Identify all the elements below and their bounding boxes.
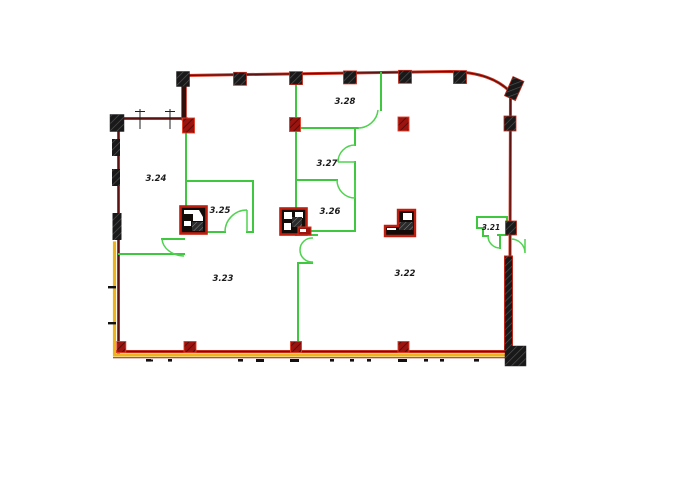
column-bottom-4: [398, 342, 409, 353]
column-top-4: [399, 70, 412, 83]
column-top-1: [234, 72, 247, 85]
column-bottom-1: [117, 342, 126, 353]
structural-columns: [110, 70, 526, 366]
floor-plan-drawing: 3.28 3.27 3.26 3.25 3.24 3.23 3.22 3.21: [0, 0, 686, 494]
shaft-symbol-left: [181, 207, 207, 234]
wall-right-thick: [505, 256, 513, 350]
room-label-3-21: 3.21: [482, 223, 501, 232]
column-step-right-end: [183, 118, 195, 133]
column-top-2: [290, 72, 303, 85]
exterior-walls: [112, 72, 513, 358]
interior-partitions: [119, 73, 507, 352]
door-arc-right-exit: [511, 239, 525, 253]
column-top-right-corner: [504, 77, 524, 101]
column-bottom-2: [184, 342, 196, 353]
column-right-2: [506, 221, 517, 235]
room-label-3-27: 3.27: [317, 159, 338, 169]
room-label-3-23: 3.23: [213, 274, 234, 284]
partition-corridor-3-24: [119, 239, 184, 254]
shaft-symbol-right: [385, 210, 415, 236]
column-red-free-2: [398, 117, 409, 131]
left-wall-segment-3: [113, 213, 122, 240]
room-3-21-enclosure: [477, 217, 507, 248]
column-red-free-1: [290, 118, 301, 132]
column-top-5: [454, 71, 467, 84]
accent-band-yellow: [115, 243, 508, 355]
column-step-corner: [110, 115, 124, 132]
door-arc-room-3-27: [338, 145, 355, 162]
room-label-3-24: 3.24: [146, 174, 167, 184]
room-labels: 3.28 3.27 3.26 3.25 3.24 3.23 3.22 3.21: [146, 97, 501, 284]
shaft-symbol-middle: [281, 209, 312, 236]
left-wall-segment-2: [112, 169, 120, 186]
door-arc-room-3-26: [337, 180, 355, 198]
column-bottom-3: [291, 342, 302, 353]
column-bottom-right-corner: [505, 346, 526, 366]
door-arc-room-3-28: [358, 110, 378, 128]
room-label-3-28: 3.28: [335, 97, 356, 107]
room-label-3-22: 3.22: [395, 269, 416, 279]
left-wall-segment-1: [112, 139, 120, 156]
door-swings: [162, 110, 525, 262]
column-right-1: [504, 116, 516, 131]
bottom-wall-ticks: [146, 359, 479, 362]
floor-plan-canvas: 3.28 3.27 3.26 3.25 3.24 3.23 3.22 3.21: [0, 0, 686, 494]
column-top-left-corner: [177, 72, 190, 87]
column-top-3: [344, 71, 357, 84]
room-label-3-25: 3.25: [210, 206, 231, 216]
door-arc-room-3-21: [488, 236, 500, 248]
room-label-3-26: 3.26: [320, 207, 341, 217]
double-door-arcs-main-partition: [300, 238, 313, 262]
